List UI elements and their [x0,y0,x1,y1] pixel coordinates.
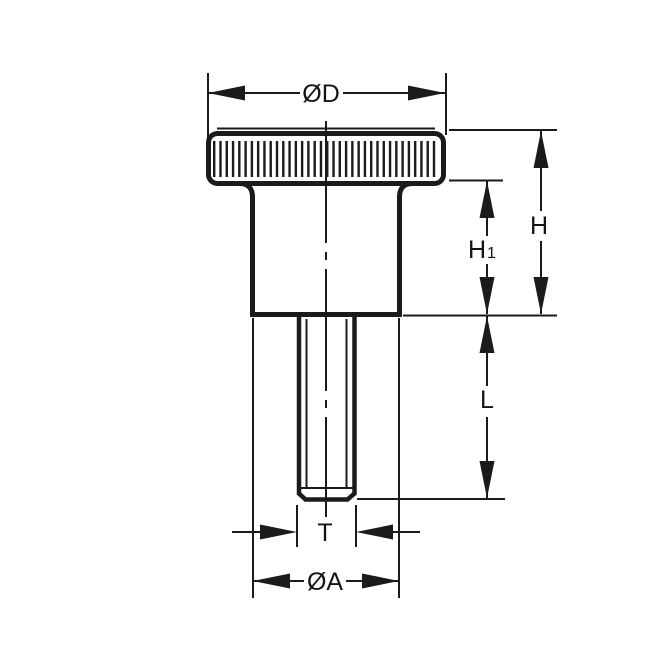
arrowhead-up [534,131,549,168]
arrowhead-right [260,525,297,540]
arrowhead-right [362,574,399,589]
dim-label-shoulder-height: H [468,236,486,264]
drawing-canvas: ØD H H 1 L T [0,0,670,670]
arrowhead-left [356,525,393,540]
dim-label-shoulder-diameter: ØA [307,568,343,596]
arrowhead-down [534,277,549,314]
dim-label-shoulder-height-subscript: 1 [487,245,496,262]
dimension-shoulder-height: H 1 [449,181,503,315]
technical-drawing: ØD H H 1 L T [0,0,670,670]
dim-label-head-diameter: ØD [302,80,340,108]
arrowhead-right [408,86,445,101]
dim-label-thread-length: L [480,386,494,414]
arrowhead-down [480,461,495,498]
arrowhead-down [480,277,495,314]
dim-label-overall-height: H [530,212,548,240]
arrowhead-left [253,574,290,589]
arrowhead-up [480,181,495,218]
dimension-thread-length: L [357,316,505,499]
dim-label-thread-diameter: T [317,519,332,547]
arrowhead-left [208,86,245,101]
arrowhead-up [480,316,495,353]
